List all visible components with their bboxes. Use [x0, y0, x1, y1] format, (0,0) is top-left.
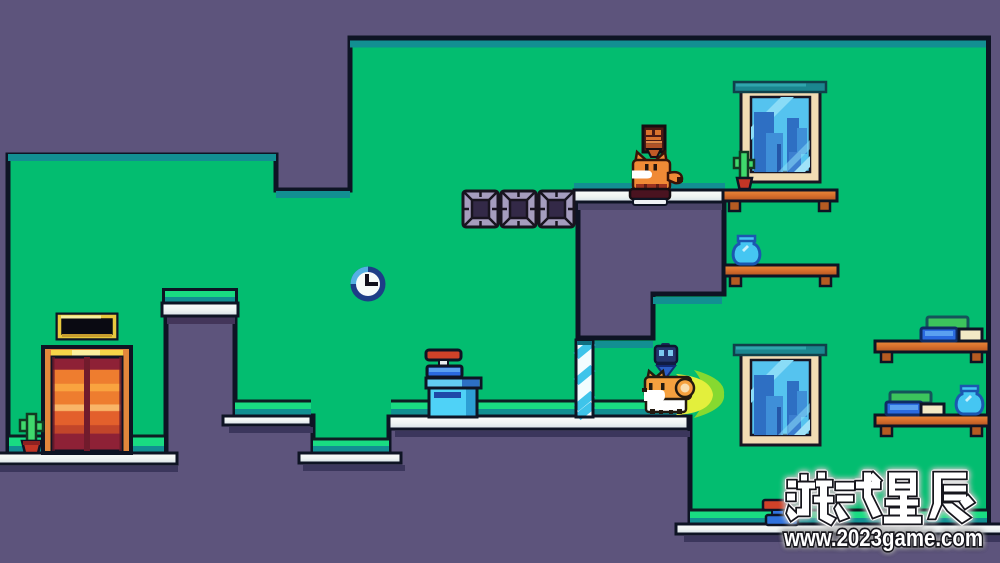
svg-text:www.2023game.com: www.2023game.com	[783, 525, 983, 552]
